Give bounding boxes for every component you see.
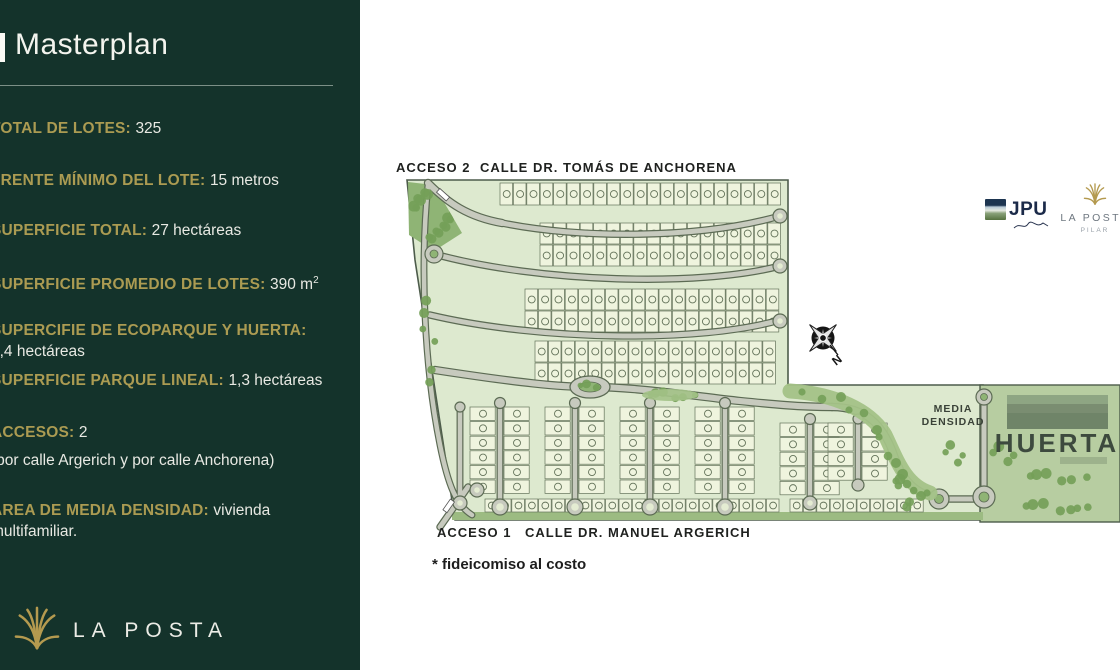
stat-frente-minimo: FRENTE MÍNIMO DEL LOTE: 15 metros: [0, 170, 343, 191]
stat-media-densidad: ÁREA DE MEDIA DENSIDAD: vivienda multifa…: [0, 500, 321, 542]
central-roundabout: [570, 376, 610, 398]
stat-label: SUPERFICIE PROMEDIO DE LOTES:: [0, 276, 270, 293]
sidebar: Masterplan TOTAL DE LOTES: 325 FRENTE MÍ…: [0, 0, 360, 670]
stat-superficie-promedio: SUPERFICIE PROMEDIO DE LOTES: 390 m2: [0, 270, 343, 295]
stat-label: ACCESOS:: [0, 424, 79, 441]
footnote: * fideicomiso al costo: [432, 556, 586, 573]
compass-n-label: N: [829, 352, 844, 368]
edge-notch: [0, 33, 5, 62]
masterplan-slide: { "sidebar": { "title": "Masterplan", "i…: [0, 0, 1120, 670]
huerta-label: HUERTA: [995, 428, 1119, 458]
jpu-logo-icon: [985, 199, 1006, 220]
media-densidad-label-1: MEDIA: [934, 403, 973, 415]
stat-note: (por calle Argerich y por calle Anchoren…: [0, 450, 343, 471]
stat-label: SUPERFICIE PARQUE LINEAL:: [0, 372, 228, 389]
linear-park-strip: [452, 512, 983, 520]
acceso1-label: ACCESO 1: [437, 525, 511, 540]
jpu-wordmark: JPU: [1009, 199, 1047, 220]
jpu-logo: JPU: [985, 199, 1047, 220]
jpu-signature-icon: [1012, 219, 1050, 232]
stat-label: TOTAL DE LOTES:: [0, 120, 135, 137]
stat-value: 1,3 hectáreas: [228, 372, 322, 389]
la-posta-top-logo: LA POSTA PILAR: [1052, 183, 1120, 234]
stat-superscript: 2: [313, 275, 319, 286]
stat-value: 325: [135, 120, 161, 137]
media-densidad-label-2: DENSIDAD: [922, 416, 985, 428]
compass-icon: N: [796, 311, 850, 368]
acceso2-label: ACCESO 2: [396, 160, 470, 175]
stat-superficie-total: SUPERFICIE TOTAL: 27 hectáreas: [0, 220, 343, 241]
stat-label: SUPERCIFIE DE ECOPARQUE Y HUERTA:: [0, 322, 307, 339]
agave-icon: [14, 606, 60, 652]
stat-total-lotes: TOTAL DE LOTES: 325: [0, 118, 343, 139]
calle-bottom-label: CALLE DR. MANUEL ARGERICH: [525, 525, 751, 540]
stat-parque-lineal: SUPERFICIE PARQUE LINEAL: 1,3 hectáreas: [0, 370, 343, 391]
stat-value: 2: [79, 424, 88, 441]
calle-top-label: CALLE DR. TOMÁS DE ANCHORENA: [480, 160, 737, 175]
stat-value: 390 m: [270, 276, 313, 293]
agave-icon: [1082, 183, 1108, 206]
stat-label: SUPERFICIE TOTAL:: [0, 222, 152, 239]
stat-label: ÁREA DE MEDIA DENSIDAD:: [0, 502, 213, 519]
stat-value: 15 metros: [210, 172, 279, 189]
stat-value: 27 hectáreas: [152, 222, 242, 239]
page-title: Masterplan: [15, 28, 168, 62]
stat-accesos: ACCESOS: 2 (por calle Argerich y por cal…: [0, 422, 343, 471]
la-posta-footer-logo: LA POSTA: [14, 606, 314, 656]
stat-label: FRENTE MÍNIMO DEL LOTE:: [0, 172, 210, 189]
la-posta-top-wordmark: LA POSTA: [1052, 212, 1120, 224]
la-posta-top-location: PILAR: [1052, 227, 1120, 234]
la-posta-footer-wordmark: LA POSTA: [73, 619, 229, 643]
stat-ecoparque-huerta: SUPERCIFIE DE ECOPARQUE Y HUERTA: 4,4 he…: [0, 320, 343, 362]
stat-value: 4,4 hectáreas: [0, 341, 343, 362]
title-divider: [0, 85, 333, 86]
